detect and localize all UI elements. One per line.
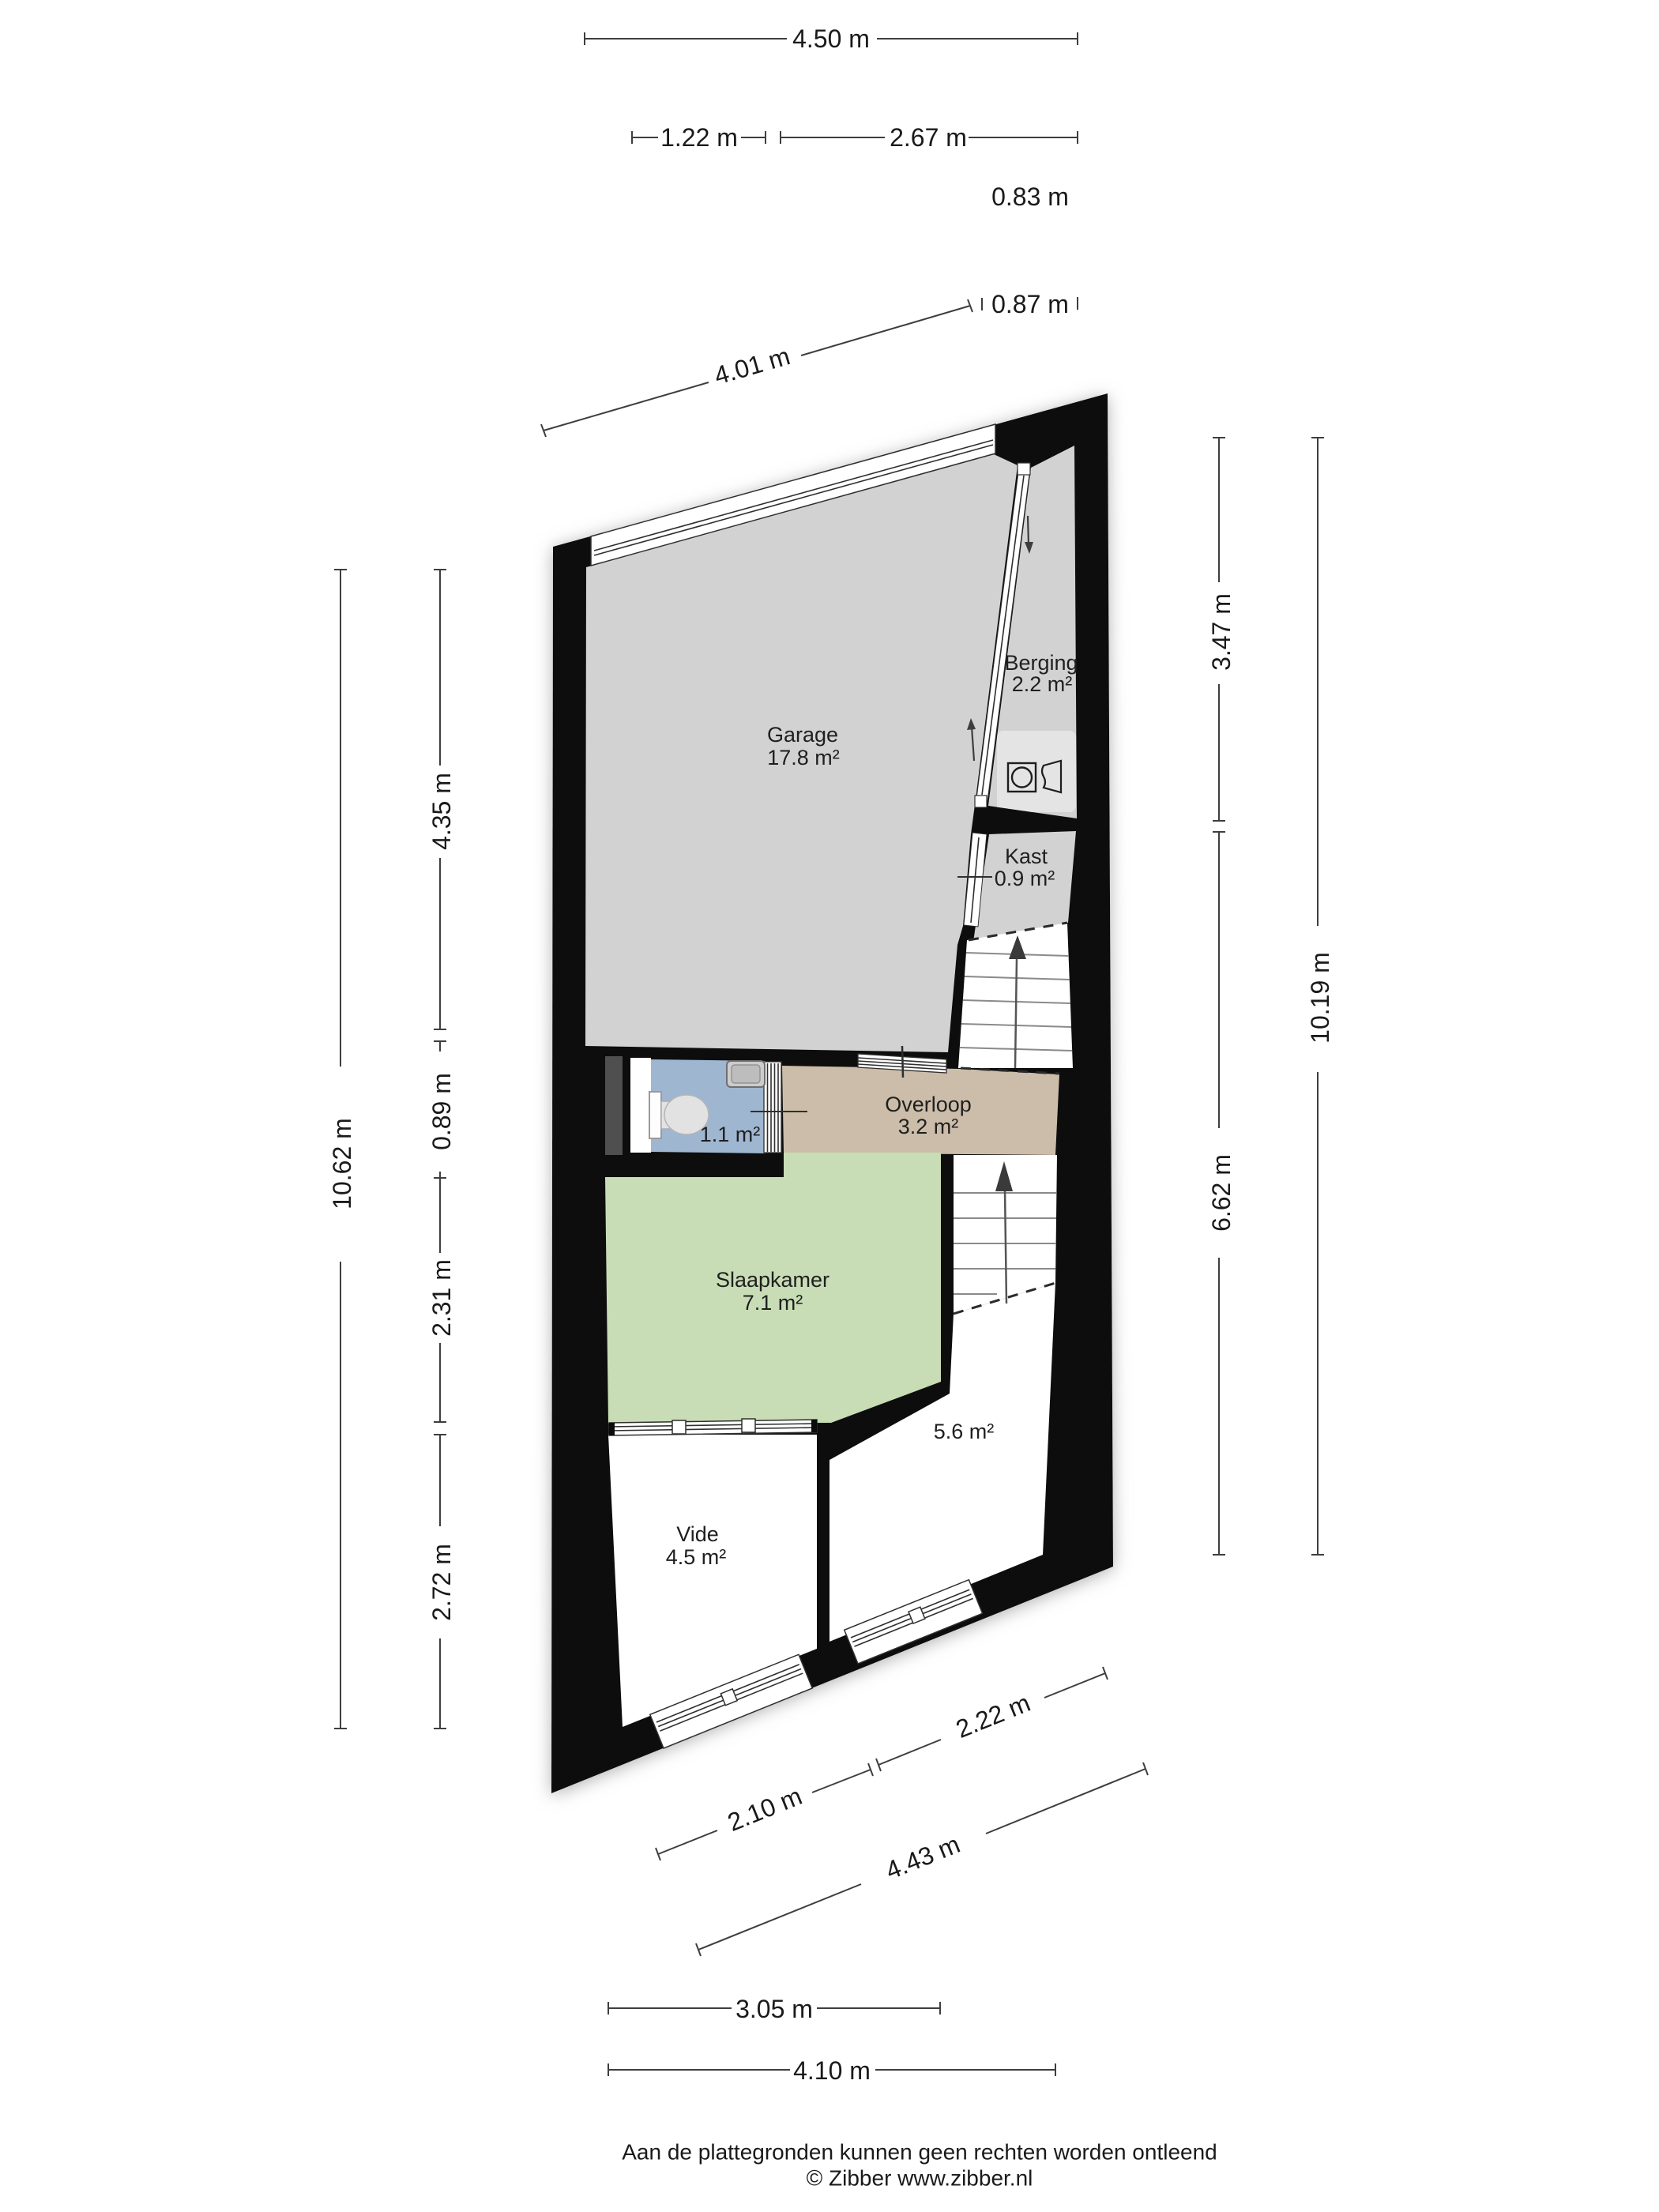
svg-text:10.62 m: 10.62 m xyxy=(328,1118,356,1209)
svg-text:Garage: Garage xyxy=(767,723,838,747)
svg-text:4.10 m: 4.10 m xyxy=(793,2056,871,2085)
svg-text:Kast: Kast xyxy=(1005,845,1048,868)
svg-text:1.1 m²: 1.1 m² xyxy=(700,1123,761,1146)
svg-text:0.89 m: 0.89 m xyxy=(427,1073,456,1150)
svg-text:1.22 m: 1.22 m xyxy=(660,123,738,152)
svg-text:3.47 m: 3.47 m xyxy=(1207,593,1236,671)
svg-text:6.62 m: 6.62 m xyxy=(1207,1154,1236,1232)
svg-text:10.19 m: 10.19 m xyxy=(1306,952,1334,1044)
svg-text:2.2 m²: 2.2 m² xyxy=(1012,672,1073,696)
svg-text:Overloop: Overloop xyxy=(885,1093,972,1116)
svg-text:7.1 m²: 7.1 m² xyxy=(743,1291,803,1315)
svg-text:Berging: Berging xyxy=(1004,651,1078,675)
svg-text:Aan de plattegronden kunnen ge: Aan de plattegronden kunnen geen rechten… xyxy=(622,2140,1217,2165)
svg-text:2.67 m: 2.67 m xyxy=(890,123,967,152)
svg-text:5.6 m²: 5.6 m² xyxy=(934,1420,995,1443)
svg-text:2.31 m: 2.31 m xyxy=(427,1259,456,1337)
svg-text:0.87 m: 0.87 m xyxy=(991,290,1069,318)
svg-text:© Zibber www.zibber.nl: © Zibber www.zibber.nl xyxy=(807,2166,1033,2191)
svg-text:0.9 m²: 0.9 m² xyxy=(995,867,1055,890)
svg-text:3.05 m: 3.05 m xyxy=(735,1995,813,2023)
svg-text:0.83 m: 0.83 m xyxy=(991,182,1069,211)
svg-text:4.5 m²: 4.5 m² xyxy=(666,1545,727,1569)
svg-text:4.35 m: 4.35 m xyxy=(427,773,456,850)
svg-text:Vide: Vide xyxy=(676,1522,719,1546)
svg-text:2.72 m: 2.72 m xyxy=(427,1544,456,1621)
svg-text:17.8 m²: 17.8 m² xyxy=(767,746,840,769)
svg-text:Slaapkamer: Slaapkamer xyxy=(716,1268,829,1292)
svg-text:3.2 m²: 3.2 m² xyxy=(898,1115,959,1138)
svg-text:4.50 m: 4.50 m xyxy=(792,24,870,53)
